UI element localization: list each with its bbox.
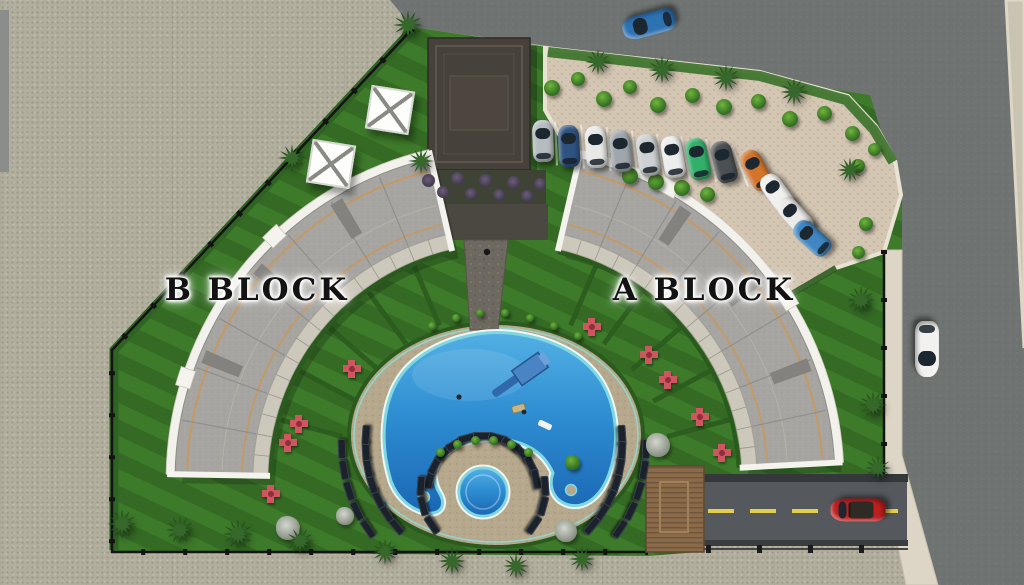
site-svg (0, 0, 1024, 585)
pedestrian (484, 249, 490, 255)
plaza-paving (438, 204, 548, 240)
swimming-pool (384, 332, 615, 518)
swimmer (456, 394, 461, 399)
swimmer (522, 410, 527, 415)
wooden-deck (646, 466, 704, 552)
pool-curl-island-right (566, 485, 577, 496)
b-block-label: B BLOCK (165, 272, 350, 308)
site-plan: B BLOCK A BLOCK (0, 0, 1024, 585)
a-block-label: A BLOCK (613, 272, 795, 308)
entrance-driveway (646, 466, 908, 552)
pool-curl-island-left (419, 492, 430, 503)
